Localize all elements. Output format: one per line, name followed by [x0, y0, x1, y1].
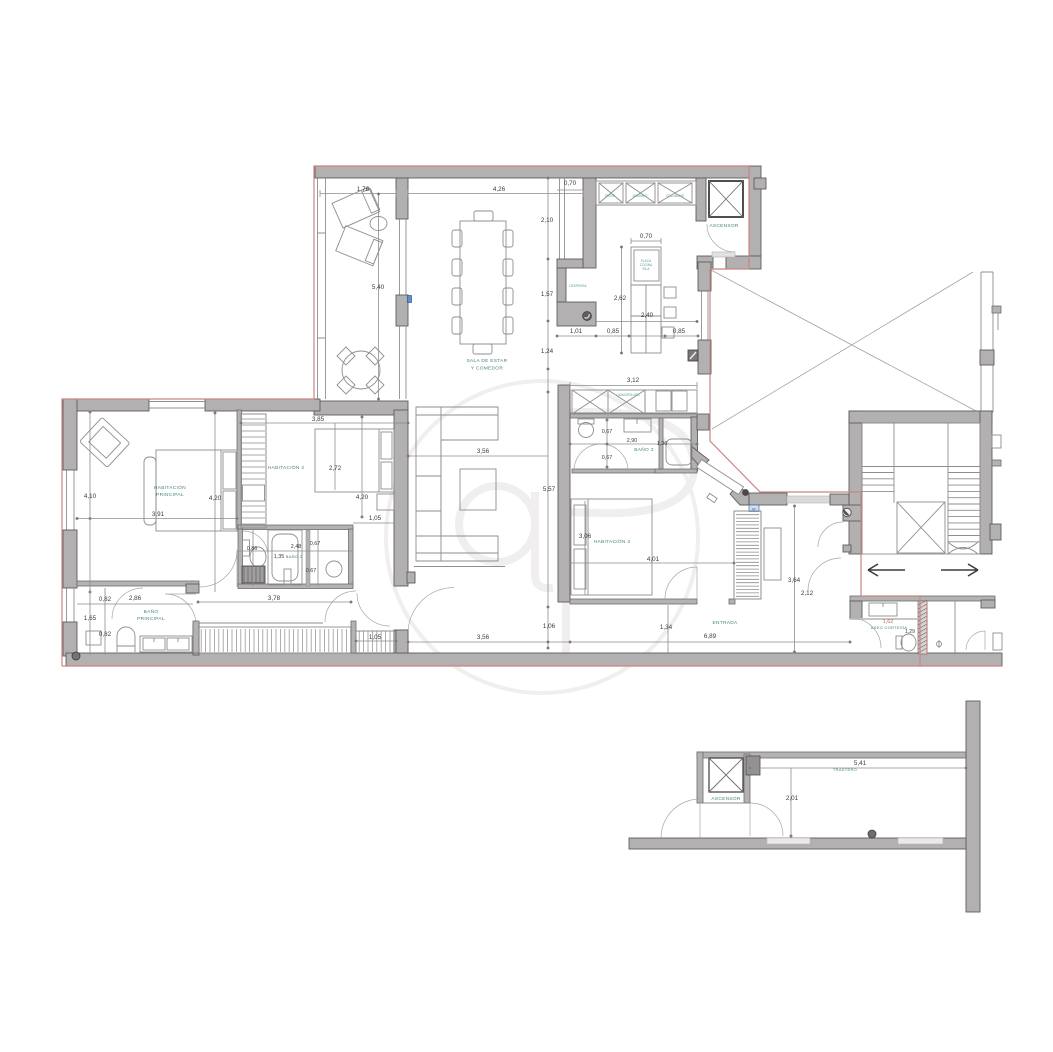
svg-text:3,78: 3,78 [268, 595, 281, 602]
svg-text:2,90: 2,90 [627, 438, 638, 444]
svg-text:0,82: 0,82 [99, 631, 112, 638]
svg-text:1,24: 1,24 [541, 348, 554, 355]
svg-text:0,85: 0,85 [673, 328, 686, 335]
svg-text:6,89: 6,89 [704, 633, 717, 640]
svg-text:2,86: 2,86 [129, 595, 142, 602]
svg-text:4,20: 4,20 [209, 495, 222, 502]
svg-text:HABITACIÓN 2: HABITACIÓN 2 [268, 464, 305, 471]
svg-text:TRASTERO: TRASTERO [833, 767, 857, 772]
svg-text:0,82: 0,82 [99, 596, 112, 603]
svg-text:0,70: 0,70 [640, 233, 653, 240]
svg-text:ASEO CORTESÍA: ASEO CORTESÍA [871, 625, 908, 630]
svg-text:4,20: 4,20 [356, 494, 369, 501]
svg-text:2,62: 2,62 [614, 295, 627, 302]
svg-text:5,57: 5,57 [543, 486, 556, 493]
svg-text:1,05: 1,05 [369, 634, 382, 641]
svg-text:LAVADORA SEC: LAVADORA SEC [616, 393, 641, 397]
svg-text:BAÑO 2: BAÑO 2 [286, 554, 303, 559]
svg-text:COLUMNAS: COLUMNAS [666, 194, 684, 198]
svg-text:BAÑO 3: BAÑO 3 [634, 446, 653, 453]
svg-text:3,64: 3,64 [788, 577, 801, 584]
svg-text:2,72: 2,72 [329, 465, 342, 472]
svg-text:ENTRADA: ENTRADA [712, 620, 738, 626]
svg-text:0,67: 0,67 [306, 568, 317, 574]
svg-text:HABITACIÓN 3: HABITACIÓN 3 [594, 538, 631, 545]
svg-text:3,85: 3,85 [312, 416, 325, 423]
svg-text:HABITACIÓN: HABITACIÓN [154, 484, 186, 491]
svg-text:DESPENSA: DESPENSA [569, 284, 587, 288]
svg-text:3,91: 3,91 [152, 511, 165, 518]
svg-text:PRINCIPAL: PRINCIPAL [156, 492, 184, 498]
svg-text:Y COMEDOR: Y COMEDOR [471, 366, 503, 372]
svg-text:ASCENSOR: ASCENSOR [709, 223, 739, 229]
svg-text:3,56: 3,56 [477, 634, 490, 641]
svg-text:ASCENSOR: ASCENSOR [711, 796, 741, 802]
svg-text:0,70: 0,70 [564, 180, 577, 187]
svg-text:1,76: 1,76 [357, 186, 370, 193]
svg-text:4,01: 4,01 [647, 556, 660, 563]
svg-text:0,67: 0,67 [310, 541, 321, 547]
svg-text:1,36: 1,36 [657, 441, 668, 447]
svg-text:2,40: 2,40 [641, 312, 654, 319]
svg-text:0,86: 0,86 [247, 546, 258, 552]
svg-text:0,85: 0,85 [607, 328, 620, 335]
svg-text:2,10: 2,10 [541, 217, 554, 224]
svg-text:1,06: 1,06 [543, 623, 556, 630]
svg-text:2,12: 2,12 [801, 590, 814, 597]
svg-text:5,41: 5,41 [854, 760, 867, 767]
svg-text:4,10: 4,10 [84, 493, 97, 500]
svg-text:SALA DE ESTAR: SALA DE ESTAR [467, 358, 508, 364]
svg-text:1,34: 1,34 [660, 624, 673, 631]
svg-text:3,06: 3,06 [579, 533, 592, 540]
svg-text:2,48: 2,48 [291, 544, 302, 550]
svg-text:0,67: 0,67 [602, 455, 613, 461]
svg-text:5,40: 5,40 [372, 284, 385, 291]
svg-text:ARMARIO: ARMARIO [633, 194, 648, 198]
svg-text:2,01: 2,01 [786, 795, 799, 802]
svg-text:1,35: 1,35 [274, 554, 285, 560]
svg-text:3,12: 3,12 [627, 377, 640, 384]
svg-text:BAÑO: BAÑO [144, 608, 159, 615]
svg-text:4,26: 4,26 [493, 186, 506, 193]
svg-text:1,05: 1,05 [369, 515, 382, 522]
svg-text:FRIGO: FRIGO [605, 194, 616, 198]
svg-text:PRINCIPAL: PRINCIPAL [137, 616, 165, 622]
svg-text:1,01: 1,01 [570, 328, 583, 335]
svg-text:1,57: 1,57 [541, 291, 554, 298]
svg-text:1,65: 1,65 [84, 615, 97, 622]
svg-text:3,56: 3,56 [477, 448, 490, 455]
svg-text:1,29: 1,29 [905, 629, 915, 635]
svg-text:ISLA: ISLA [643, 267, 651, 271]
svg-text:0,67: 0,67 [602, 429, 613, 435]
